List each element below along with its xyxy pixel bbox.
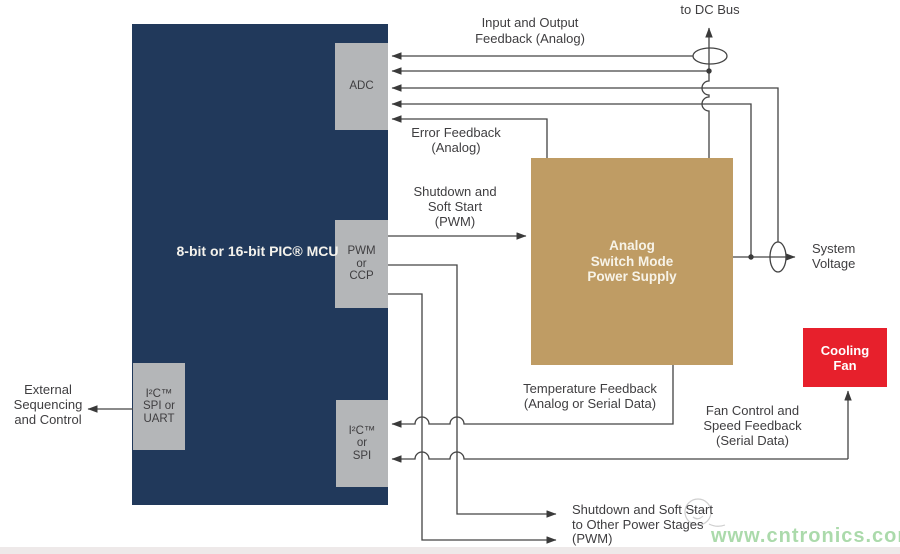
shdn-line1: Shutdown and xyxy=(399,184,511,199)
sysv-line1: System xyxy=(812,241,882,256)
fan-control-label: Fan Control and Speed Feedback (Serial D… xyxy=(690,403,815,448)
i2c-spi-line1: I²C™ xyxy=(349,425,376,438)
fanc-line1: Fan Control and xyxy=(690,403,815,418)
ext-line3: and Control xyxy=(2,412,94,427)
i2c-spi-line3: SPI xyxy=(349,450,376,463)
input-output-feedback-label: Input and Output Feedback (Analog) xyxy=(440,15,620,47)
i2c-spi-line2: or xyxy=(349,437,376,450)
mcu-label-line2: PIC® MCU xyxy=(269,243,338,259)
psu-line1: Analog xyxy=(587,238,676,254)
temp-line1: Temperature Feedback xyxy=(500,381,680,396)
mcu-label: 8-bit or 16-bit PIC® MCU xyxy=(150,244,365,259)
fan-line2: Fan xyxy=(821,358,869,373)
temp-line2: (Analog or Serial Data) xyxy=(500,396,680,411)
psu-line3: Power Supply xyxy=(587,269,676,285)
psu-block: Analog Switch Mode Power Supply xyxy=(531,158,733,365)
temperature-feedback-label: Temperature Feedback (Analog or Serial D… xyxy=(500,381,680,411)
adc-port-label: ADC xyxy=(349,80,373,93)
to-dc-bus-text: to DC Bus xyxy=(660,2,760,17)
to-dc-bus-label: to DC Bus xyxy=(660,2,760,17)
junction-dot-dcbus xyxy=(706,68,711,73)
ext-line1: External xyxy=(2,382,94,397)
pwm-label-line3: CCP xyxy=(347,270,375,283)
shutdown-soft-start-label: Shutdown and Soft Start (PWM) xyxy=(399,184,511,229)
errfb-line2: (Analog) xyxy=(396,140,516,155)
mcu-label-line1: 8-bit or 16-bit xyxy=(177,243,266,259)
wire-to-dc-bus xyxy=(702,28,709,158)
cooling-fan-block: Cooling Fan xyxy=(803,328,887,387)
uart-line2: SPI or xyxy=(143,400,175,413)
uart-line1: I²C™ xyxy=(143,388,175,401)
fan-line1: Cooling xyxy=(821,343,869,358)
iofb-line2: Feedback (Analog) xyxy=(440,31,620,47)
shutdown-other-stages-label: Shutdown and Soft Start to Other Power S… xyxy=(572,503,747,547)
fanc-line2: Speed Feedback xyxy=(690,418,815,433)
iofb-line1: Input and Output xyxy=(440,15,620,31)
shdn2-line2: to Other Power Stages xyxy=(572,518,747,533)
sysv-line2: Voltage xyxy=(812,256,882,271)
shdn2-line3: (PWM) xyxy=(572,532,747,547)
shdn-line2: Soft Start xyxy=(399,199,511,214)
pwm-label-line2: or xyxy=(347,258,375,271)
ext-line2: Sequencing xyxy=(2,397,94,412)
external-sequencing-label: External Sequencing and Control xyxy=(2,382,94,427)
system-voltage-sense-oval xyxy=(770,242,786,272)
diagram-canvas: 8-bit or 16-bit PIC® MCU ADC PWM or CCP … xyxy=(0,0,900,554)
junction-dot-sysv xyxy=(748,254,753,259)
dc-bus-sense-oval xyxy=(693,48,727,64)
system-voltage-label: System Voltage xyxy=(812,241,882,271)
i2c-spi-port-block: I²C™ or SPI xyxy=(336,400,388,487)
wire-fan-control-left xyxy=(392,452,848,459)
pwm-ccp-port-block: PWM or CCP xyxy=(335,220,388,308)
psu-line2: Switch Mode xyxy=(587,254,676,270)
uart-line3: UART xyxy=(143,413,175,426)
fanc-line3: (Serial Data) xyxy=(690,433,815,448)
i2c-spi-uart-port-block: I²C™ SPI or UART xyxy=(133,363,185,450)
error-feedback-label: Error Feedback (Analog) xyxy=(396,125,516,155)
adc-port-block: ADC xyxy=(335,43,388,130)
shdn-line3: (PWM) xyxy=(399,214,511,229)
bottom-strip xyxy=(0,547,900,554)
errfb-line1: Error Feedback xyxy=(396,125,516,140)
shdn2-line1: Shutdown and Soft Start xyxy=(572,503,747,518)
